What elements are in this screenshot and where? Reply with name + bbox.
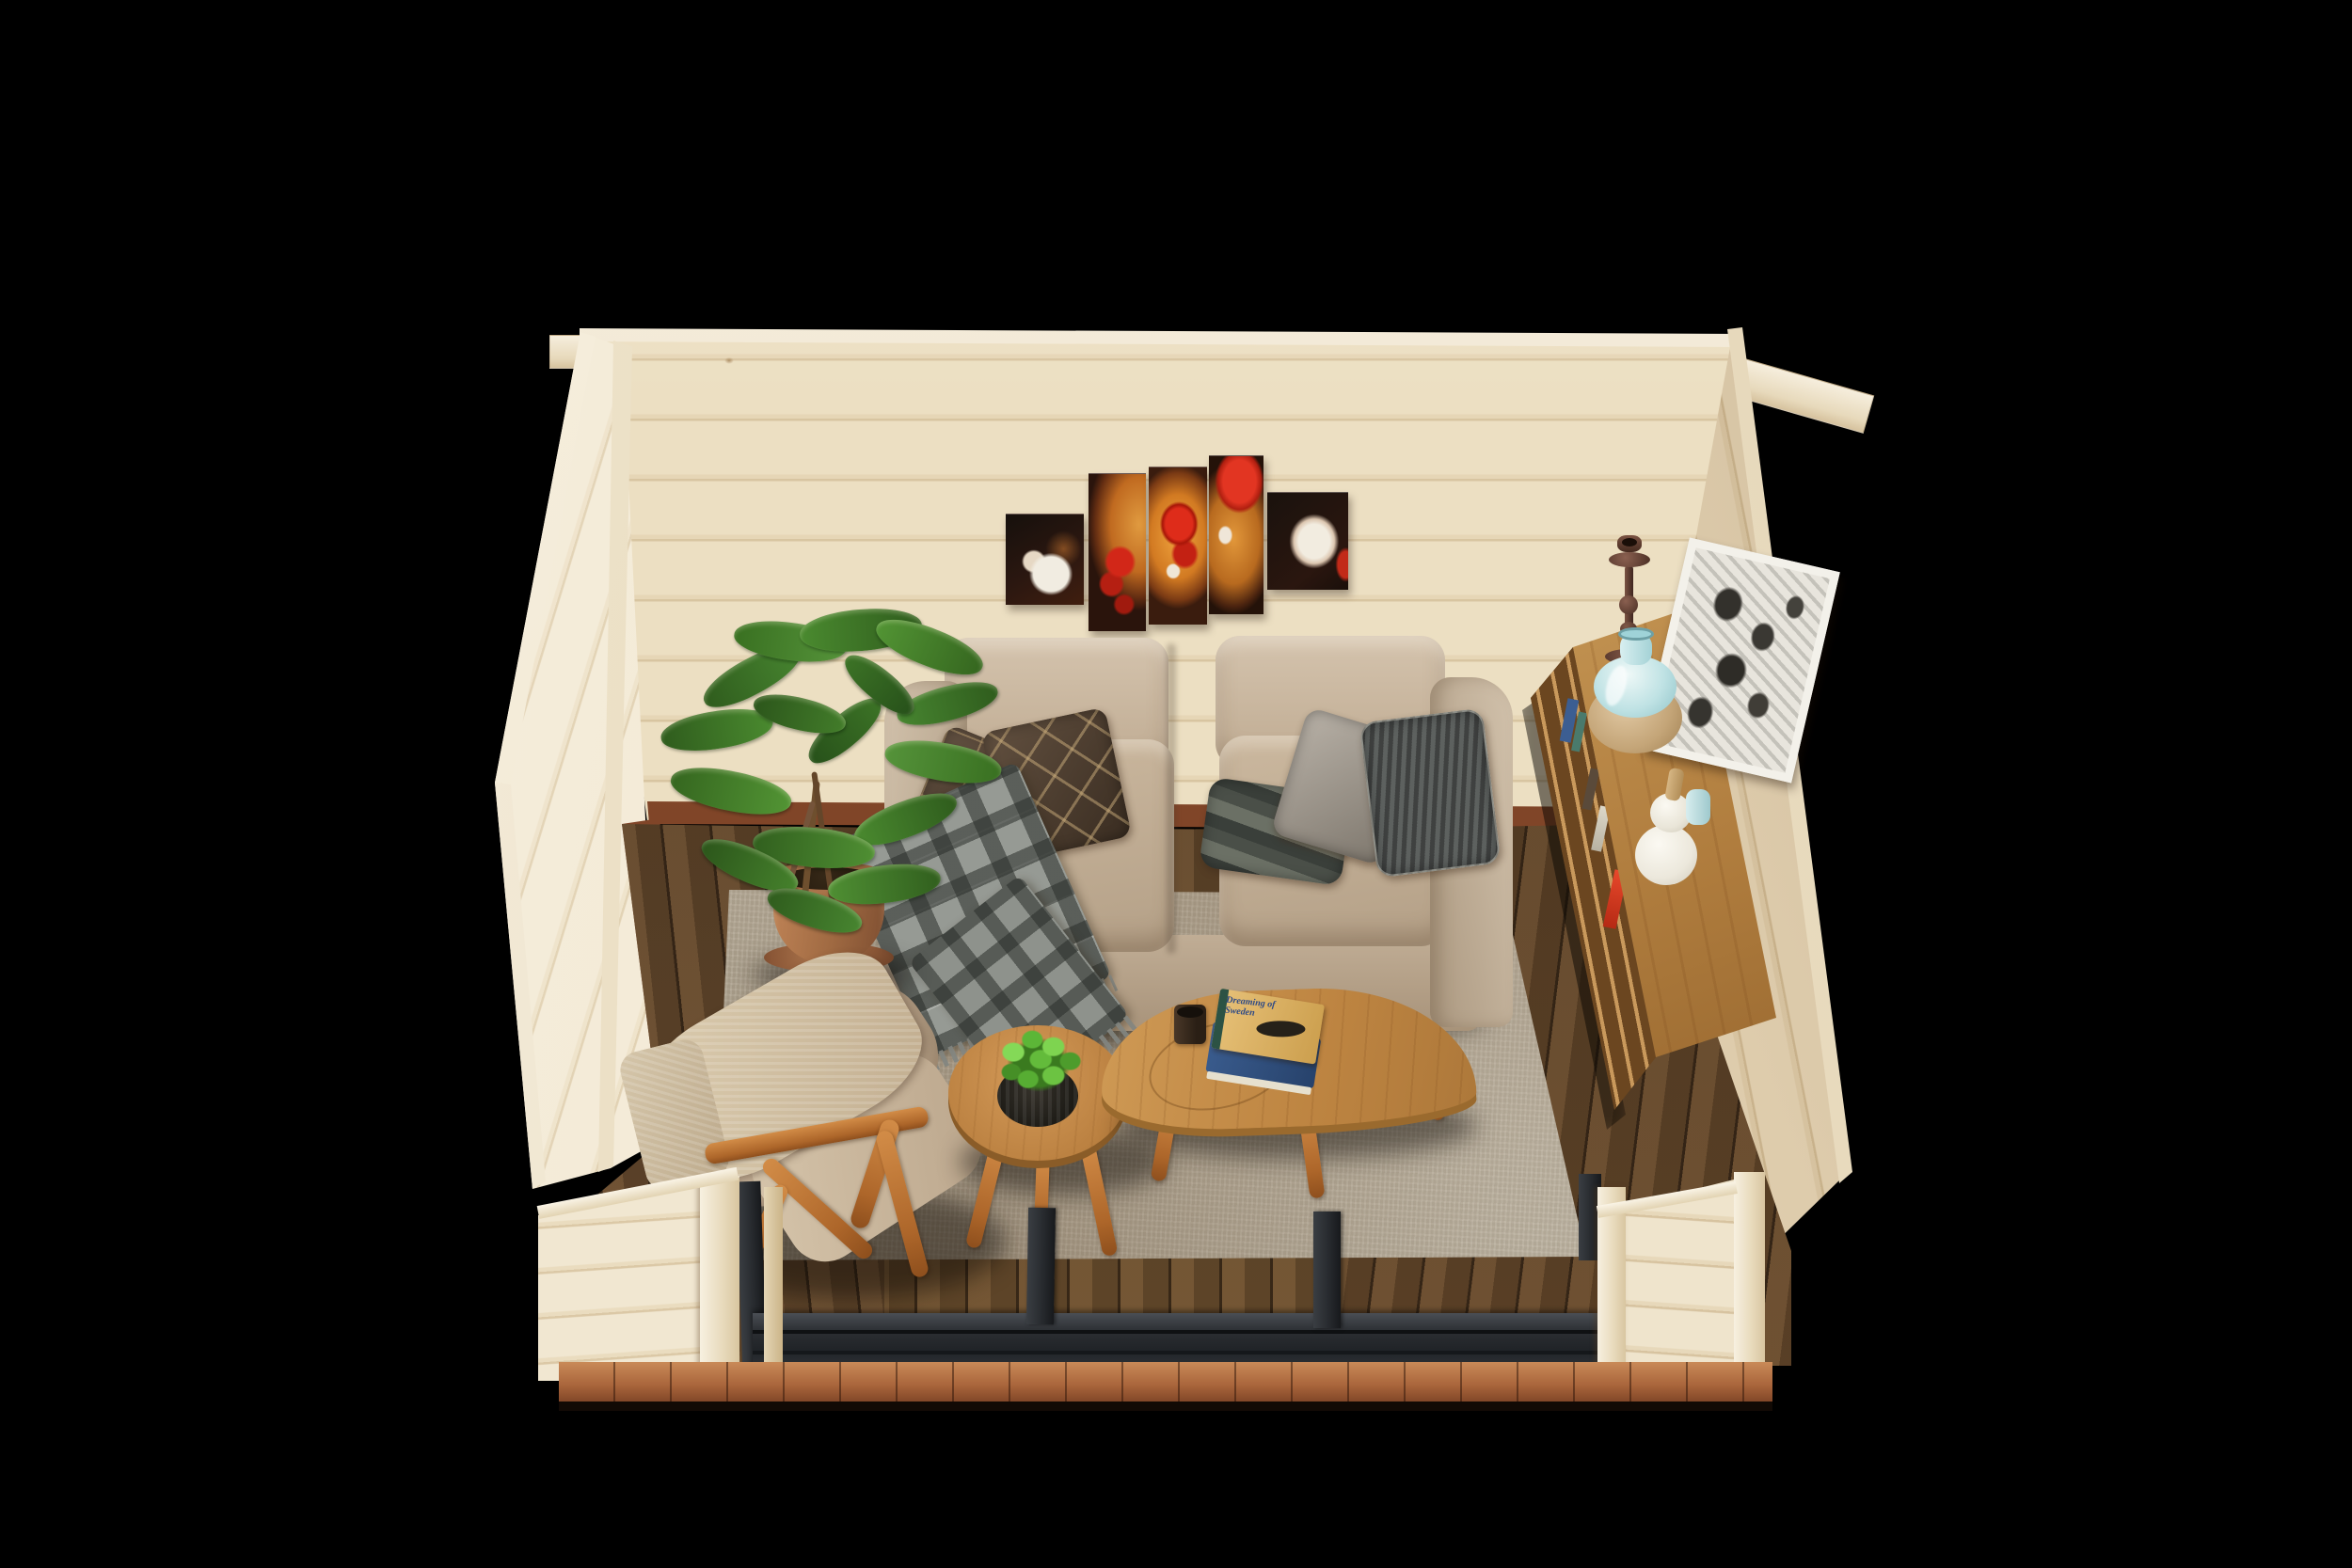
- table-candle: [1174, 1005, 1206, 1044]
- candle-wax-top: [1177, 1006, 1203, 1018]
- coffee-table-large: Dreaming of Sweden: [1091, 978, 1486, 1260]
- book-fish-art: [1256, 1021, 1305, 1037]
- small-table-plant: [986, 1020, 1091, 1110]
- art-panel-1: [1006, 514, 1084, 605]
- front-sill: [559, 1362, 1772, 1403]
- book-pages: [1206, 1071, 1311, 1095]
- pillow-corduroy: [1359, 708, 1501, 879]
- gourd-lower: [1635, 825, 1697, 885]
- front-sill-shadow-edge: [559, 1402, 1772, 1411]
- front-wall-right-trim-right: [1734, 1172, 1765, 1381]
- art-panel-4: [1209, 455, 1263, 614]
- door-mullion-right: [1313, 1212, 1341, 1328]
- framed-print: [1641, 538, 1840, 784]
- book-title: Dreaming of Sweden: [1225, 996, 1285, 1022]
- art-panel-3: [1149, 467, 1207, 625]
- door-track-rail: [753, 1351, 1604, 1354]
- plant-leaf: [882, 733, 1004, 790]
- door-track-rail: [753, 1330, 1604, 1334]
- candlestick-drip-pan: [1609, 552, 1650, 567]
- art-panel-5: [1267, 492, 1348, 590]
- print-abstract-art: [1651, 547, 1830, 772]
- wall-art-five-panel: [997, 450, 1355, 638]
- front-wall-left-trim: [700, 1178, 739, 1381]
- art-panel-2: [1089, 473, 1146, 631]
- floor-plant: [649, 602, 988, 997]
- book-stack: Dreaming of Sweden: [1202, 989, 1340, 1110]
- vase-bud-blue: [1686, 789, 1710, 825]
- candlestick-socket: [1622, 538, 1637, 546]
- scene-3d-cabin-interior: Dreaming of Sweden: [0, 0, 2352, 1568]
- candlestick-knob: [1619, 595, 1638, 614]
- sideboard: [1515, 522, 1808, 1145]
- door-mullion-left: [1026, 1208, 1056, 1324]
- vase-rim: [1618, 627, 1654, 641]
- plant-leaf: [667, 759, 795, 823]
- sofa-center-gap: [1167, 643, 1176, 954]
- door-jamb-pine: [764, 1187, 783, 1375]
